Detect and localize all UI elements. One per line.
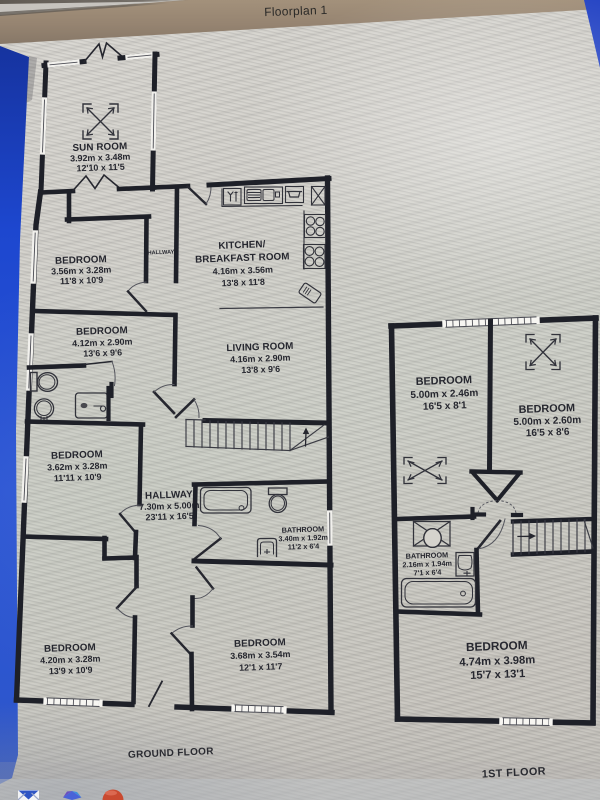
svg-text:16'5 x 8'6: 16'5 x 8'6 xyxy=(526,427,570,440)
svg-text:13'6 x 9'6: 13'6 x 9'6 xyxy=(83,347,122,358)
svg-text:BEDROOM: BEDROOM xyxy=(518,402,575,416)
svg-text:Floorplan 1: Floorplan 1 xyxy=(264,3,328,19)
svg-text:23'11 x 16'5: 23'11 x 16'5 xyxy=(145,511,194,523)
svg-text:BEDROOM: BEDROOM xyxy=(466,638,528,654)
svg-text:13'8 x 11'8: 13'8 x 11'8 xyxy=(221,277,265,289)
svg-text:HALLWAY: HALLWAY xyxy=(147,250,174,257)
svg-text:7'1 x 6'4: 7'1 x 6'4 xyxy=(413,567,442,577)
svg-text:16'5 x 8'1: 16'5 x 8'1 xyxy=(423,400,467,413)
svg-text:3.62m x 3.28m: 3.62m x 3.28m xyxy=(47,460,108,472)
svg-text:15'7 x 13'1: 15'7 x 13'1 xyxy=(470,668,525,682)
svg-text:13'8 x 9'6: 13'8 x 9'6 xyxy=(241,364,280,375)
svg-text:BEDROOM: BEDROOM xyxy=(234,637,286,650)
svg-text:4.12m x 2.90m: 4.12m x 2.90m xyxy=(72,336,133,348)
svg-text:11'2 x 6'4: 11'2 x 6'4 xyxy=(288,541,321,551)
svg-text:4.16m x 2.90m: 4.16m x 2.90m xyxy=(230,352,291,364)
svg-text:11'8 x 10'9: 11'8 x 10'9 xyxy=(60,275,104,287)
svg-text:4.20m x 3.28m: 4.20m x 3.28m xyxy=(40,653,101,665)
svg-text:13'9 x 10'9: 13'9 x 10'9 xyxy=(49,665,93,677)
svg-text:3.68m x 3.54m: 3.68m x 3.54m xyxy=(230,649,291,661)
svg-text:12'10 x 11'5: 12'10 x 11'5 xyxy=(76,162,125,174)
svg-text:4.16m x 3.56m: 4.16m x 3.56m xyxy=(213,264,274,276)
svg-text:BEDROOM: BEDROOM xyxy=(416,374,473,388)
svg-text:11'11 x 10'9: 11'11 x 10'9 xyxy=(54,472,102,484)
svg-text:12'1 x 11'7: 12'1 x 11'7 xyxy=(239,661,283,673)
svg-text:KITCHEN/: KITCHEN/ xyxy=(218,239,266,252)
